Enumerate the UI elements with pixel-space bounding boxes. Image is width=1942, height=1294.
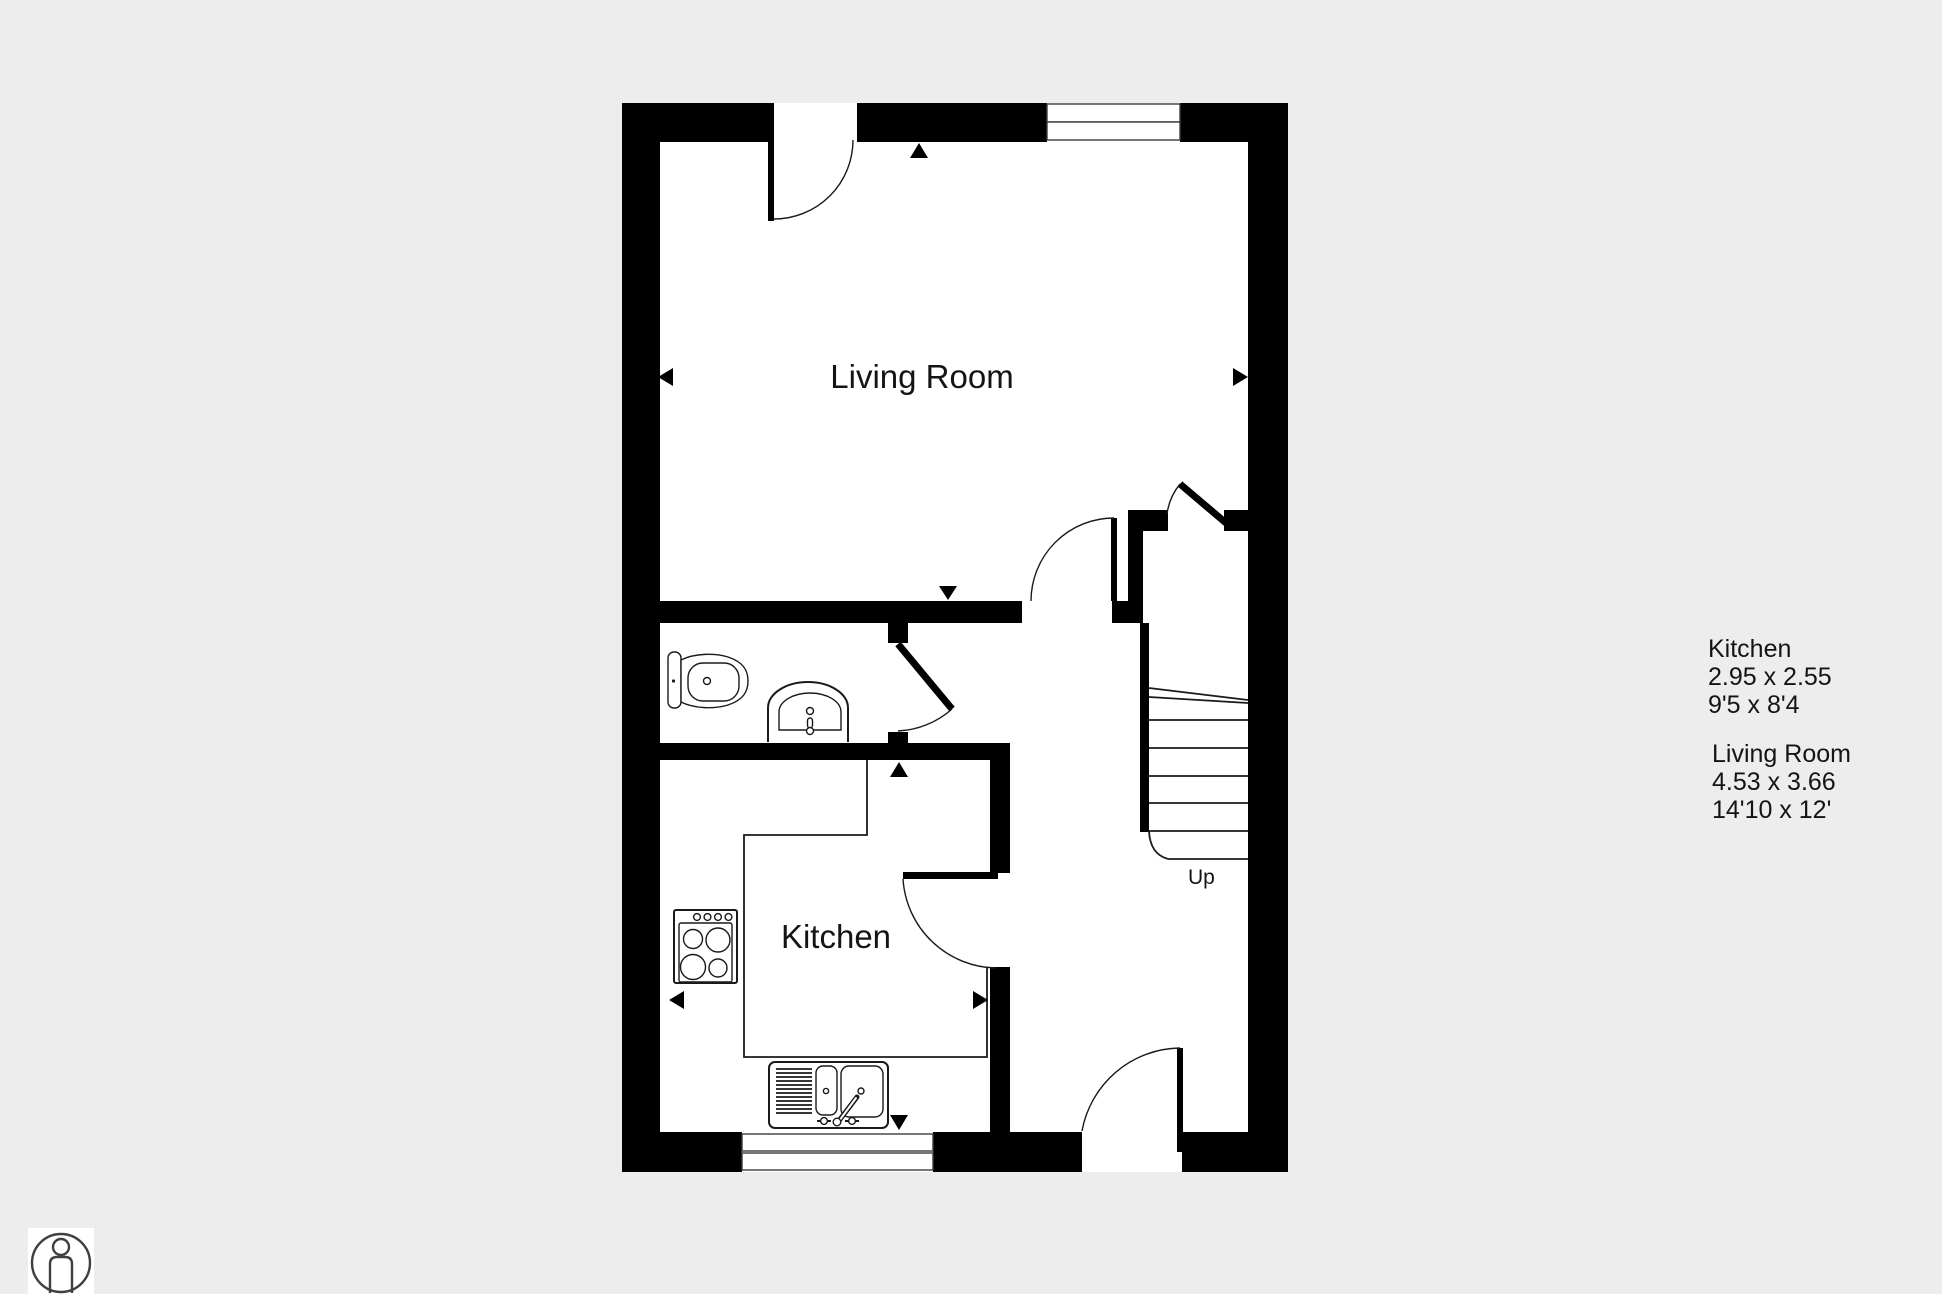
- wall-top-right: [1180, 103, 1288, 142]
- kitchen-dim-name: Kitchen: [1708, 635, 1791, 663]
- basin-drain: [807, 708, 814, 715]
- wall-bottom-left: [622, 1132, 742, 1172]
- stove-knob: [715, 914, 722, 921]
- wall-kitchen-east-lower: [990, 967, 1010, 1132]
- toilet-flush-dot: [704, 678, 711, 685]
- wall-bottom-right: [1182, 1132, 1288, 1172]
- stairs-up-label: Up: [1188, 866, 1215, 889]
- stove-knob: [725, 914, 732, 921]
- floorplan-page: Up: [0, 0, 1942, 1294]
- toilet-cistern-dot: [672, 679, 675, 682]
- basin-tap: [808, 718, 813, 728]
- kitchen-dim-imperial: 9'5 x 8'4: [1708, 691, 1800, 719]
- wall-stairhall-north-west: [1128, 510, 1168, 531]
- window-top-pane: [1047, 104, 1180, 122]
- wall-top-mid: [857, 103, 1047, 142]
- stove-burner: [709, 959, 727, 977]
- stove-knob: [704, 914, 711, 921]
- living-room-label: Living Room: [830, 358, 1013, 395]
- door-leaf: [768, 103, 774, 221]
- basin-icon: [768, 682, 848, 742]
- door-leaf: [903, 872, 998, 879]
- wall-bathroom-east-bottom: [888, 732, 908, 743]
- sink-drain-dot: [858, 1088, 864, 1094]
- wall-left: [622, 103, 660, 1172]
- wall-kitchen-north: [622, 743, 1010, 760]
- wall-bottom-mid: [933, 1132, 1082, 1172]
- toilet-seat: [688, 663, 739, 701]
- living-room-dim-name: Living Room: [1712, 740, 1851, 768]
- wall-right: [1248, 103, 1288, 1172]
- door-leaf: [1111, 518, 1117, 601]
- floorplan-svg: Up: [0, 0, 1942, 1294]
- basin-tap-handle: [807, 728, 814, 735]
- kitchen-label: Kitchen: [781, 918, 891, 955]
- floor-area: [622, 103, 1288, 1172]
- toilet-icon: [668, 652, 748, 708]
- wall-stairs-west: [1140, 623, 1149, 832]
- window-kitchen-pane: [742, 1134, 933, 1151]
- sink-spout-base: [833, 1118, 841, 1126]
- sink-drain-dot: [823, 1088, 828, 1093]
- living-room-dim-imperial: 14'10 x 12': [1712, 796, 1831, 824]
- window-top-pane: [1047, 122, 1180, 140]
- kitchen-dim-metric: 2.95 x 2.55: [1708, 663, 1832, 691]
- stove-burner: [681, 955, 706, 980]
- wall-top-left: [622, 103, 768, 142]
- wall-livingroom-south: [622, 601, 1022, 623]
- door-leaf: [1177, 1048, 1183, 1152]
- stove-knob: [694, 914, 701, 921]
- stove-icon: [674, 910, 737, 983]
- wall-bathroom-east-top: [888, 623, 908, 643]
- stove-burner: [684, 930, 703, 949]
- window-kitchen-pane: [742, 1153, 933, 1170]
- wall-kitchen-east-upper: [990, 760, 1010, 873]
- dimension-text-block: Kitchen 2.95 x 2.55 9'5 x 8'4 Living Roo…: [1708, 635, 1851, 824]
- living-room-dim-metric: 4.53 x 3.66: [1712, 768, 1836, 796]
- person-icon: [28, 1228, 94, 1294]
- sink-unit-icon: [769, 1062, 888, 1128]
- stove-burner: [706, 928, 730, 952]
